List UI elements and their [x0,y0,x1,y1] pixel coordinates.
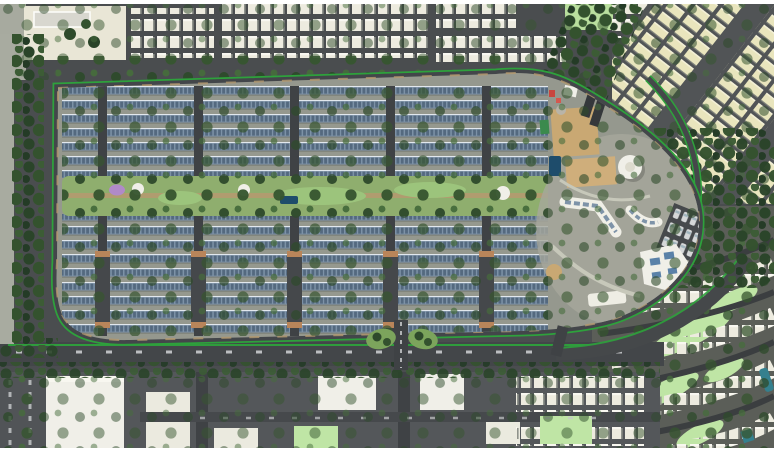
entrance-tree [383,338,391,346]
entrance-road [394,320,408,370]
masterplan-aerial-view [0,0,774,454]
development [56,73,709,340]
frame-top [0,0,774,4]
development-interior [62,77,710,336]
masterplan-svg [0,0,774,454]
housing-street-trees [62,84,548,336]
commercial-district [0,372,660,448]
entrance-tree [373,333,382,342]
arterial-tree-row [0,362,660,378]
parking-trees [0,376,46,448]
west-road [0,34,14,344]
entrance-tree [424,338,432,346]
west-tree-column [12,34,44,346]
parking-strip-west [0,376,46,448]
commercial-trees [0,372,660,448]
frame-bottom [0,448,774,454]
entrance-tree [415,332,424,341]
